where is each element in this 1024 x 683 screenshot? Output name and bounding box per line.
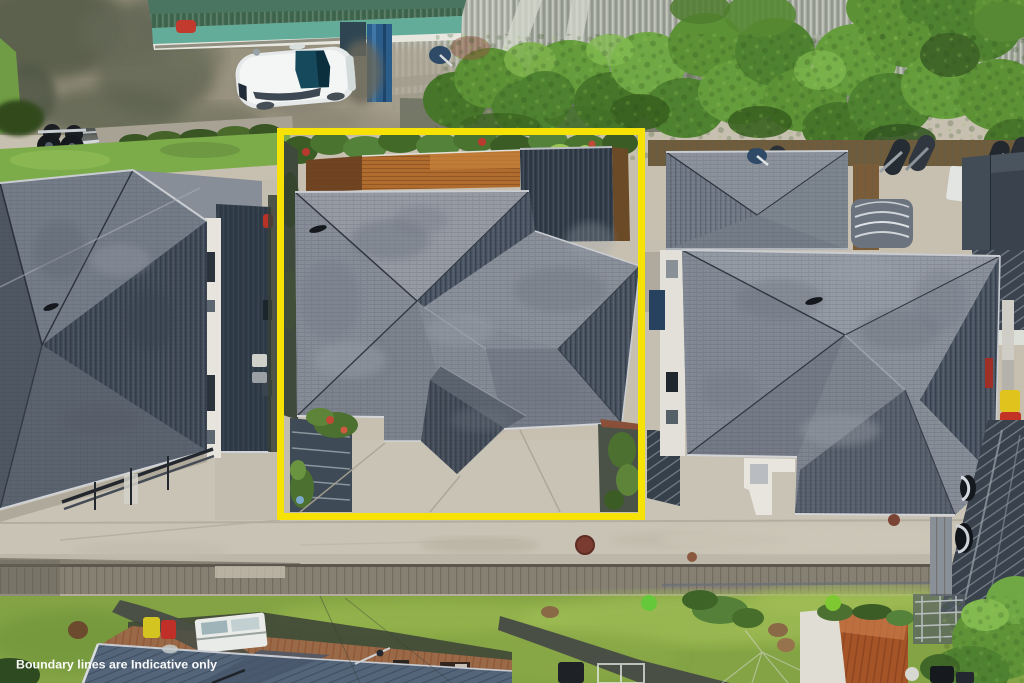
- svg-text:Boundary lines are Indicative: Boundary lines are Indicative only: [16, 658, 217, 672]
